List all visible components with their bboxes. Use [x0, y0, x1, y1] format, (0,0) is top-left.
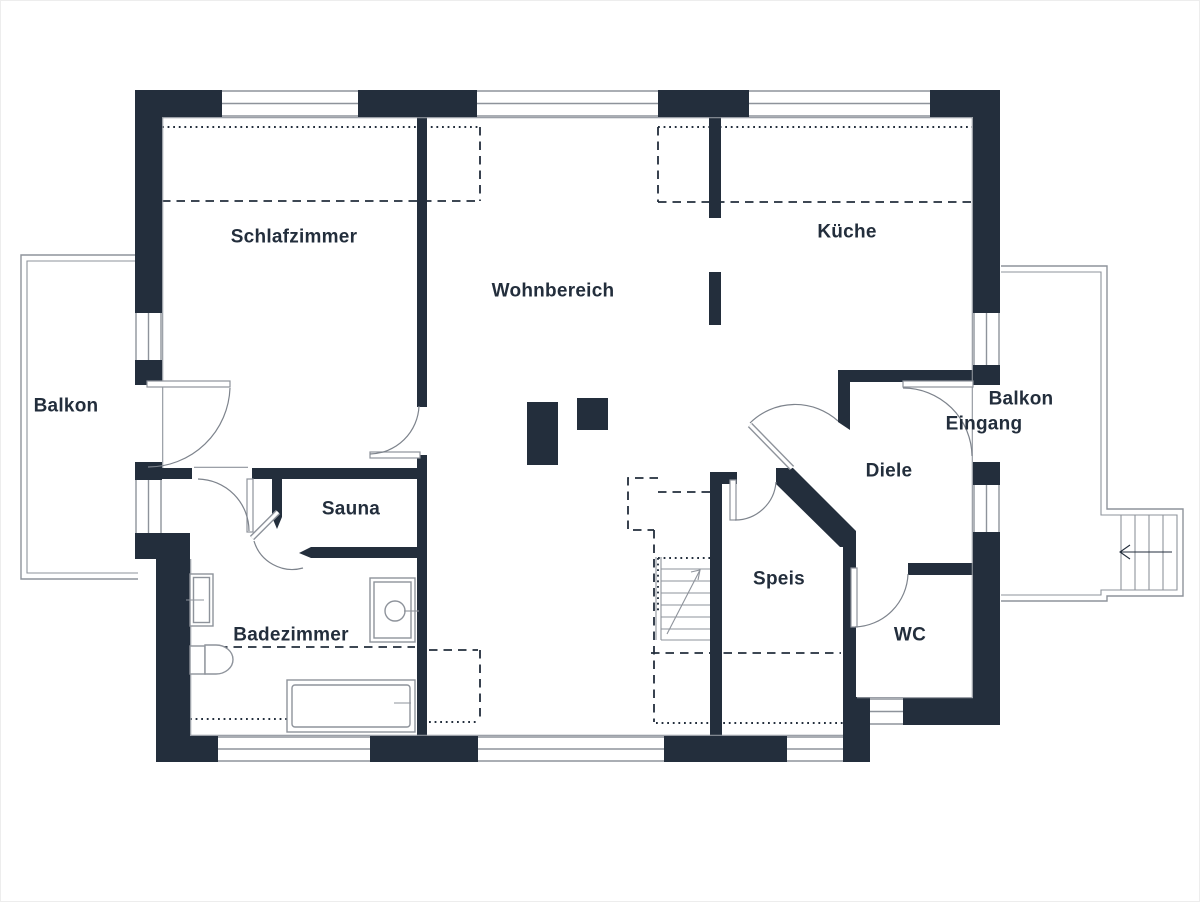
window [478, 736, 664, 762]
room-label-wohnbereich: Wohnbereich [492, 282, 615, 303]
room-label-balkon-right: Balkon [989, 390, 1054, 411]
windows [135, 90, 1000, 762]
window [787, 736, 843, 762]
exterior-staircase-icon [1120, 515, 1172, 590]
room-label-schlafzimmer: Schlafzimmer [231, 228, 358, 249]
chimney-block [577, 398, 608, 430]
room-label-kueche: Küche [817, 223, 876, 244]
vanity-sink-icon [370, 578, 419, 642]
room-label-badezimmer: Badezimmer [233, 626, 349, 647]
exterior-walls [135, 90, 1000, 762]
window [973, 485, 1000, 532]
bathroom-fixtures [186, 574, 419, 732]
balcony-right-railing [1001, 266, 1183, 601]
window [870, 698, 903, 725]
wc-door [851, 568, 908, 627]
room-label-balkon-left: Balkon [34, 397, 99, 418]
window [477, 90, 658, 117]
toilet-icon [190, 645, 233, 674]
room-label-diele: Diele [866, 462, 913, 483]
floor-plan-page: Schlafzimmer Wohnbereich Küche Balkon Ba… [0, 0, 1200, 902]
room-label-eingang: Eingang [946, 415, 1023, 436]
hall-door [750, 404, 838, 468]
bathtub-icon [287, 680, 415, 732]
window [135, 313, 162, 360]
interior-staircase-icon [656, 557, 710, 640]
chimney-block [527, 402, 558, 465]
window [749, 90, 930, 117]
window [135, 480, 162, 533]
room-label-wc: WC [894, 626, 926, 647]
pantry-door [730, 480, 776, 520]
window [222, 90, 358, 117]
roof-overhang-lines [162, 127, 972, 202]
balcony-door [147, 381, 230, 467]
window [218, 736, 370, 762]
floor-plan-drawing [0, 0, 1200, 902]
room-label-speis: Speis [753, 570, 805, 591]
bedroom-door [370, 406, 420, 458]
washbasin-icon [186, 574, 213, 626]
window [973, 313, 1000, 365]
room-label-sauna: Sauna [322, 500, 380, 521]
bathroom-door [194, 467, 253, 532]
